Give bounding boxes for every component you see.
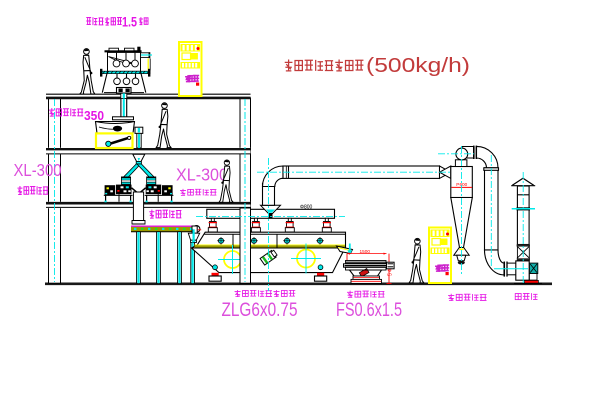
svg-text:ZLG6x0.75: ZLG6x0.75 xyxy=(222,300,298,321)
svg-text:(500kg/h): (500kg/h) xyxy=(366,54,470,77)
svg-text:Φ800: Φ800 xyxy=(300,204,313,210)
svg-text:350: 350 xyxy=(84,108,104,123)
svg-text:XL-300: XL-300 xyxy=(14,160,62,180)
svg-text:1500: 1500 xyxy=(360,249,371,254)
svg-text:1.5: 1.5 xyxy=(122,15,137,30)
svg-text:XL-300: XL-300 xyxy=(176,165,228,185)
svg-text:FS0.6x1.5: FS0.6x1.5 xyxy=(336,300,402,321)
